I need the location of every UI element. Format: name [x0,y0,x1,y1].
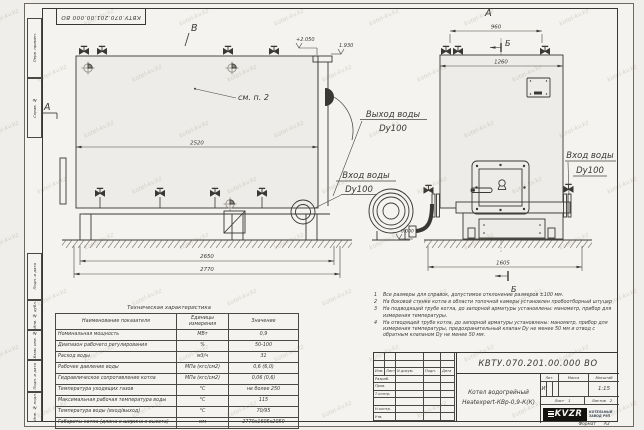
company-name: КОТЕЛЬНЫЙ ЗАВОД РЭП [589,410,612,418]
side-view [424,38,592,252]
view-label-v: В [191,23,198,34]
elevation-zero: 0.000 [401,229,414,235]
outlet-size: Dy100 [379,124,407,134]
table-row: Диапазон рабочего регулирования%50-100 [56,341,299,352]
dim-2520: 2520 [190,141,204,147]
tech-table-title: Техническая характеристика [55,305,283,311]
table-row: Гидравлическое сопротивление котлаМПа (к… [56,374,299,385]
view-label-a: А [484,8,492,19]
table-row: Номинальная мощностьМВт0,9 [56,330,299,341]
logo-bars-icon [548,410,554,419]
section-label-b-top: Б [505,39,511,48]
col-izm: Изм. [374,368,385,376]
valve-icon [97,46,106,54]
scale-label: Масштаб [589,374,619,382]
table-row: Максимальная рабочая температура воды°С1… [56,396,299,407]
col-list: Лист [385,368,396,376]
sheets-cell: Листов 2 [585,397,619,405]
valve-icon [453,46,462,54]
scale-value: 1:15 [589,382,619,397]
company-logo: KVZR КОТЕЛЬНЫЙ ЗАВОД РЭП [541,405,619,423]
outlet-bend-icon [325,88,334,106]
dim-960: 960 [491,25,502,31]
row-prov: Пров. [374,383,396,391]
inlet-size-front: Dy100 [345,185,373,195]
note-item: 1Все размеры для справок, допустимое отк… [372,293,618,299]
col-dokum: N докум. [396,368,424,376]
inlet-label-front: Вход воды [342,171,390,181]
table-row: Расход водым3/ч31 [56,352,299,363]
table-header-row: Наименование показателя Единицы измерени… [56,314,299,330]
elevation-pipe: 1.930 [339,43,353,49]
note-item: 2На боковой стенке котла в области топоч… [372,300,618,306]
row-utv: Утв. [374,413,396,421]
table-row: Температура уходящих газов°Сне более 250 [56,385,299,396]
valve-icon [441,46,450,54]
mass-label: Масса [559,374,589,382]
row-razrab: Разраб. [374,376,396,384]
note-item: 4На отводящей трубе котла, до запорной а… [372,321,618,340]
valve-icon [540,46,549,54]
drawing-title-line1: Котел водогрейный [468,389,529,398]
dim-1605: 1605 [496,261,510,267]
row-blank [374,398,396,406]
inlet-label-side: Вход воды [566,151,614,161]
mass-value [559,382,589,397]
col-header: Значение [229,314,299,330]
col-podp: Подп. [424,368,441,376]
kvzr-logo: KVZR [543,408,587,421]
format-label: Формат А3 [556,422,632,427]
doc-number: КВТУ.070.201.00.000 ВО [457,353,619,374]
drawing-title: Котел водогрейный Heatexpert-КВр-0,9-К(К… [457,374,541,423]
col-header: Единицы измерения [177,314,229,330]
row-nkontr: Н.контр. [374,406,396,414]
drawing-title-line2: Heatexpert-КВр-0,9-К(К) [462,399,535,408]
col-data: Дата [441,368,455,376]
title-block: Изм. Лист N докум. Подп. Дата Разраб. Пр… [373,352,618,422]
dim-2770: 2770 [200,267,214,273]
valve-icon [223,46,232,54]
sheet-cell: Лист 1 [541,397,585,405]
notes-list: 1Все размеры для справок, допустимое отк… [372,293,618,341]
section-label-a: А [43,102,51,113]
valve-icon [269,46,278,54]
col-header: Наименование показателя [56,314,177,330]
dim-1260: 1260 [494,60,508,66]
note-item: 3На подводящей трубе котла, до запорной … [372,307,618,319]
dim-2650: 2650 [200,254,214,260]
inlet-size-side: Dy100 [576,166,604,176]
drawing-sheet: КВТУ.070.201.00.000 ВО Перв. примен. Спр… [0,0,644,430]
see-note-label: см. п. 2 [238,93,269,102]
valve-icon [424,185,433,193]
title-block-signatures: Изм. Лист N докум. Подп. Дата Разраб. Пр… [374,353,457,421]
lit-label: Лит. [541,374,559,382]
table-row: Габариты котла (длина х ширина х высота)… [56,418,299,429]
table-row: Рабочее давление водыМПа (кгс/см2)0,6 (6… [56,363,299,374]
tech-characteristics: Техническая характеристика Наименование … [55,305,283,429]
elevation-top: +2.050 [296,37,315,43]
title-block-right: Лит. Масса Масштаб И 1:15 Лист 1 Листов … [541,374,619,423]
tech-table: Наименование показателя Единицы измерени… [55,313,299,429]
row-tkontr: Т.контр. [374,391,396,399]
valve-icon [79,46,88,54]
table-row: Температура воды (вход/выход)°С70/95 [56,407,299,418]
outlet-label: Выход воды [366,110,420,120]
